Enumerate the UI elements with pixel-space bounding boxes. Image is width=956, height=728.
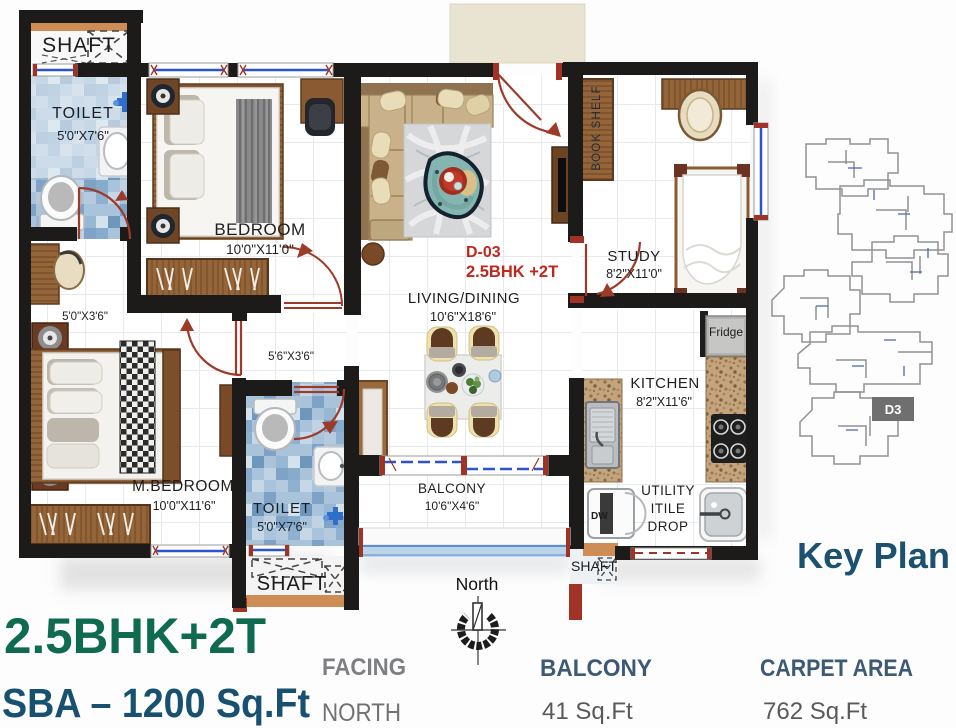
svg-text:8'2"X11'6": 8'2"X11'6" [636, 395, 692, 409]
svg-text:BEDROOM: BEDROOM [214, 220, 305, 239]
svg-text:5'0"X7'6": 5'0"X7'6" [57, 128, 109, 143]
svg-text:2.5BHK+2T: 2.5BHK+2T [4, 608, 266, 664]
svg-text:8'2"X11'0": 8'2"X11'0" [606, 267, 662, 281]
svg-text:BALCONY: BALCONY [418, 481, 486, 496]
svg-text:TOILET: TOILET [52, 105, 114, 122]
svg-text:10'0"X11'6": 10'0"X11'6" [153, 499, 216, 513]
svg-text:D-03: D-03 [466, 244, 501, 261]
svg-text:ITILE: ITILE [651, 501, 686, 516]
svg-text:DROP: DROP [647, 519, 688, 534]
svg-text:NORTH: NORTH [322, 699, 401, 727]
svg-text:UTILITY: UTILITY [641, 483, 695, 498]
svg-text:D3: D3 [885, 402, 902, 417]
svg-text:5'0"X3'6": 5'0"X3'6" [62, 311, 108, 323]
svg-text:41 Sq.Ft: 41 Sq.Ft [542, 698, 633, 725]
svg-text:North: North [456, 574, 499, 594]
svg-text:BALCONY: BALCONY [540, 655, 652, 682]
svg-text:SBA – 1200 Sq.Ft: SBA – 1200 Sq.Ft [2, 680, 310, 726]
svg-text:5'6"X3'6": 5'6"X3'6" [268, 351, 314, 363]
svg-text:10'6"X4'6": 10'6"X4'6" [425, 499, 479, 513]
svg-text:Key Plan: Key Plan [797, 535, 950, 576]
svg-text:DW: DW [591, 511, 608, 522]
svg-text:BOOK SHELF: BOOK SHELF [591, 85, 603, 171]
svg-text:2.5BHK +2T: 2.5BHK +2T [466, 263, 558, 281]
svg-text:SHAFT: SHAFT [257, 573, 328, 595]
svg-text:Fridge: Fridge [709, 325, 743, 339]
svg-text:M.BEDROOM: M.BEDROOM [132, 478, 234, 495]
svg-text:KITCHEN: KITCHEN [630, 375, 699, 392]
svg-text:5'0"X7'6": 5'0"X7'6" [257, 520, 307, 534]
svg-text:STUDY: STUDY [607, 248, 660, 265]
svg-text:FACING: FACING [322, 654, 406, 681]
svg-text:10'0"X11'0": 10'0"X11'0" [226, 242, 294, 257]
svg-text:LIVING/DINING: LIVING/DINING [408, 290, 520, 307]
svg-text:CARPET AREA: CARPET AREA [760, 655, 913, 682]
svg-text:10'6"X18'6": 10'6"X18'6" [430, 309, 497, 324]
svg-text:TOILET: TOILET [253, 500, 311, 517]
svg-text:SHAFT: SHAFT [571, 558, 617, 574]
svg-text:SHAFT: SHAFT [42, 34, 116, 57]
svg-text:762 Sq.Ft: 762 Sq.Ft [763, 698, 867, 725]
